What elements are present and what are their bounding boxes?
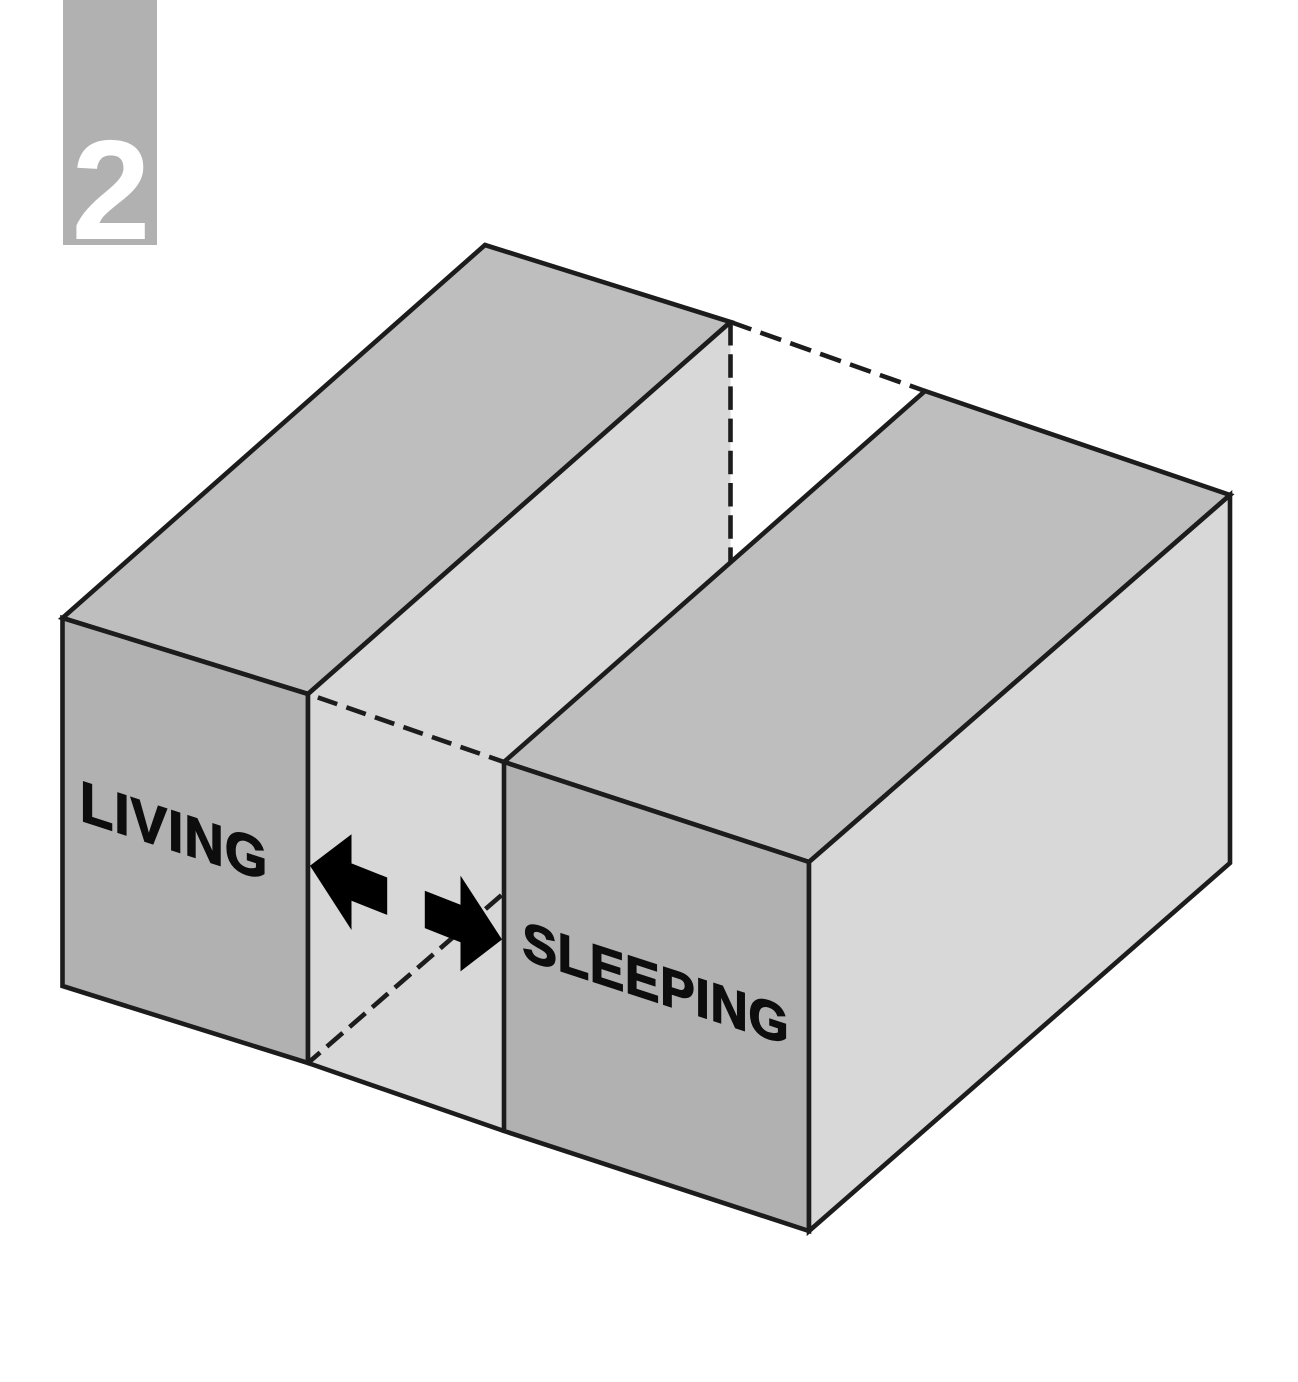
svg-text:2: 2	[72, 111, 151, 270]
